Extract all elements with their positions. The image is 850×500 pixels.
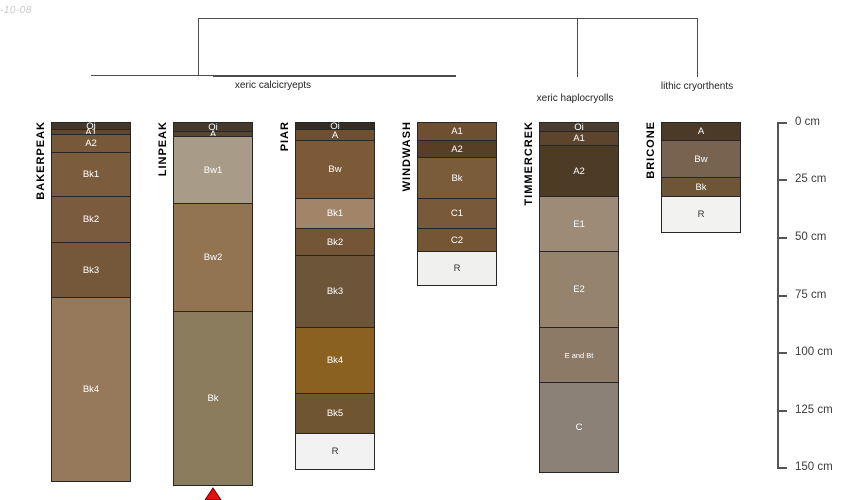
horizon-rect: Bk [417,157,497,199]
profile-name-label: BAKERPEAK [35,121,47,200]
horizon-rect: Bw [295,140,375,199]
horizon-label: A1 [573,134,585,143]
depth-tick [777,352,787,354]
profile-name-label: BRICONE [645,121,657,179]
horizon-rect: C1 [417,198,497,229]
taxonomy-group-label-cryorthents: lithic cryorthents [661,81,733,92]
profile-name-label: WINDWASH [401,121,413,191]
horizon-rect: Bw2 [173,203,253,312]
dendrogram-subcluster-bracket [213,76,456,77]
profile-name-label: TIMMERCREK [523,121,535,206]
dendrogram-top-line [198,18,697,19]
horizon-label: Bk [207,394,218,403]
horizon-label: Bk2 [83,215,99,224]
depth-tick-label: 125 cm [795,404,833,416]
depth-tick-label: 75 cm [795,289,826,301]
depth-tick-label: 100 cm [795,346,833,358]
horizon-label: Bw1 [204,166,222,175]
profile-name-label: LINPEAK [157,121,169,176]
profile-name-label: PIAR [279,121,291,151]
taxonomy-group-label-calcicryepts: xeric calcicryepts [235,80,311,91]
truncation-triangle-icon [204,487,222,500]
horizon-label: E2 [573,285,585,294]
horizon-rect: C [539,382,619,473]
horizon-rect: Bk3 [51,242,131,298]
horizon-rect: E1 [539,196,619,252]
depth-tick-label: 0 cm [795,116,820,128]
depth-tick [777,410,787,412]
horizon-rect: A2 [539,145,619,197]
depth-tick-label: 25 cm [795,173,826,185]
horizon-label: Bk2 [327,238,343,247]
depth-tick [777,467,787,469]
horizon-rect: R [661,196,741,233]
horizon-label: Bw [328,165,341,174]
horizon-rect: R [295,433,375,470]
horizon-rect: E2 [539,251,619,328]
horizon-rect: Bw1 [173,136,253,204]
horizon-rect: A [661,122,741,141]
horizon-rect: Bk1 [51,152,131,197]
horizon-label: R [332,447,339,456]
horizon-label: C [576,423,583,432]
horizon-label: Bk [695,183,706,192]
dendrogram-haplocryolls-stem [577,18,578,77]
horizon-rect: Bk [661,177,741,197]
horizon-label: Bk4 [327,356,343,365]
horizon-label: E and Bt [565,351,594,360]
horizon-label: Bk3 [327,287,343,296]
horizon-label: A2 [451,145,463,154]
dendrogram-cryorthents-stem [697,18,698,77]
horizon-label: Bk1 [327,209,343,218]
horizon-rect: Bk [173,311,253,486]
horizon-label: A1 [451,127,463,136]
taxonomy-group-label-haplocryolls: xeric haplocryolls [537,93,614,104]
horizon-label: Bw2 [204,253,222,262]
horizon-label: Bw [694,155,707,164]
horizon-rect: Bk4 [51,297,131,482]
dendrogram-left-stem [198,18,199,75]
horizon-label: C1 [451,209,463,218]
horizon-rect: A2 [417,140,497,158]
horizon-label: R [454,264,461,273]
horizon-label: Bk1 [83,170,99,179]
soil-profile-figure: -10-08 xeric calcicryepts xeric haplocry… [0,0,850,500]
horizon-rect: R [417,251,497,286]
horizon-label: E1 [573,220,585,229]
horizon-rect: C2 [417,228,497,252]
horizon-label: Bk4 [83,385,99,394]
horizon-label: A2 [573,167,585,176]
horizon-rect: Bk5 [295,393,375,434]
horizon-label: R [698,210,705,219]
horizon-rect: Bk2 [295,228,375,256]
horizon-rect: Bk3 [295,255,375,328]
horizon-rect: Bk1 [295,198,375,229]
depth-tick [777,122,787,124]
horizon-rect: Bk2 [51,196,131,243]
horizon-label: A2 [85,139,97,148]
horizon-label: Bk5 [327,409,343,418]
horizon-label: A [698,127,704,136]
horizon-rect: A2 [51,134,131,153]
depth-tick [777,237,787,239]
horizon-rect: Bw [661,140,741,178]
horizon-label: A [332,131,338,140]
timestamp: -10-08 [0,5,32,16]
horizon-rect: Bk4 [295,327,375,394]
depth-tick-label: 150 cm [795,461,833,473]
depth-tick-label: 50 cm [795,231,826,243]
horizon-rect: E and Bt [539,327,619,383]
depth-tick [777,295,787,297]
horizon-label: C2 [451,236,463,245]
depth-tick [777,179,787,181]
horizon-rect: A1 [417,122,497,141]
horizon-rect: A1 [539,131,619,146]
horizon-label: Bk [451,174,462,183]
horizon-label: Bk3 [83,266,99,275]
